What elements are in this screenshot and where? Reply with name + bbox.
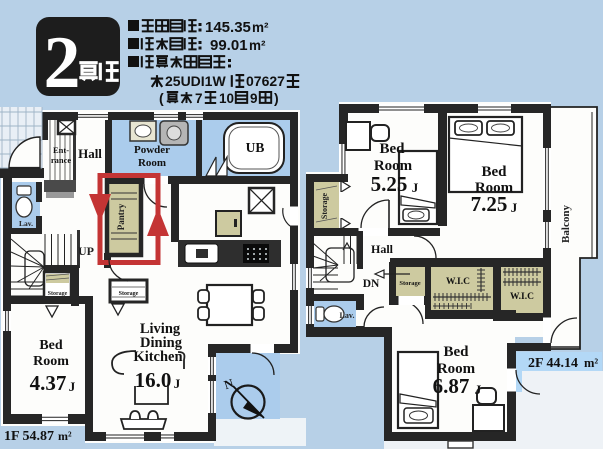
svg-text:Bed: Bed — [379, 141, 405, 157]
svg-text:9: 9 — [250, 91, 258, 106]
svg-text:Pantry: Pantry — [116, 203, 126, 230]
svg-text:7.25: 7.25 — [471, 192, 508, 216]
svg-text:Ent-: Ent- — [53, 145, 69, 155]
svg-text:W.I.C: W.I.C — [510, 292, 534, 302]
svg-text:Bed: Bed — [39, 338, 63, 353]
svg-text:5.25: 5.25 — [371, 172, 408, 196]
svg-text:99.01: 99.01 — [210, 37, 248, 54]
svg-text:J: J — [69, 379, 76, 394]
svg-text:6.87: 6.87 — [433, 374, 470, 398]
svg-text:2F 44.14: 2F 44.14 — [528, 356, 578, 371]
svg-text:m²: m² — [584, 356, 598, 370]
svg-text:Hall: Hall — [78, 146, 102, 161]
svg-text:4.37: 4.37 — [30, 371, 67, 395]
svg-text:J: J — [412, 180, 419, 195]
svg-text:J: J — [511, 200, 518, 215]
svg-text:): ) — [274, 90, 279, 106]
svg-text:2: 2 — [44, 22, 81, 104]
svg-text:Lav.: Lav. — [340, 311, 355, 320]
svg-text:W.I.C: W.I.C — [446, 277, 470, 287]
svg-text:J: J — [475, 382, 482, 397]
svg-text:Bed: Bed — [443, 344, 469, 360]
svg-text:Kitchen: Kitchen — [133, 349, 182, 365]
svg-text:m²: m² — [249, 38, 266, 53]
svg-text:Hall: Hall — [371, 242, 394, 256]
svg-text:(: ( — [159, 90, 164, 106]
svg-text:UB: UB — [246, 140, 265, 155]
svg-text:Bed: Bed — [481, 164, 507, 180]
svg-text:10: 10 — [219, 91, 234, 106]
svg-text:Room: Room — [33, 354, 69, 369]
svg-text:Balcony: Balcony — [560, 205, 572, 243]
svg-text:1F 54.87: 1F 54.87 — [4, 429, 54, 444]
svg-text:Storage: Storage — [119, 291, 139, 297]
svg-text:UP: UP — [78, 244, 94, 258]
svg-text:Storage: Storage — [399, 280, 420, 287]
svg-text:25UDI1W: 25UDI1W — [165, 73, 226, 89]
svg-text:Room: Room — [138, 157, 166, 169]
svg-text:Storage: Storage — [320, 192, 329, 219]
svg-text:Powder: Powder — [134, 144, 170, 156]
svg-text:Lav.: Lav. — [19, 219, 33, 228]
svg-text:J: J — [174, 376, 181, 391]
svg-text:16.0: 16.0 — [135, 368, 172, 392]
svg-text:m²: m² — [58, 429, 72, 443]
svg-text:145.35: 145.35 — [205, 19, 251, 36]
svg-text:rance: rance — [51, 155, 72, 165]
svg-text:7: 7 — [195, 91, 203, 106]
svg-text:07627: 07627 — [246, 73, 285, 89]
svg-text:DN: DN — [363, 278, 380, 290]
svg-text:m²: m² — [252, 20, 269, 35]
